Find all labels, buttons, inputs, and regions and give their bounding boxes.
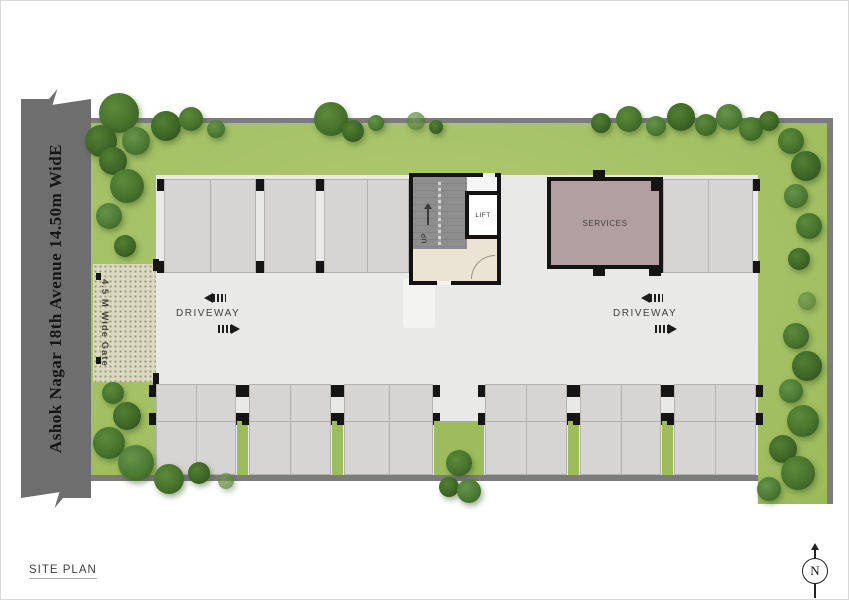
tree xyxy=(154,464,184,494)
tree xyxy=(667,103,695,131)
arrow-bar-icon xyxy=(213,294,226,302)
tree xyxy=(695,114,717,136)
column xyxy=(667,413,674,425)
arrow-right-icon xyxy=(668,324,677,334)
tree xyxy=(110,169,144,203)
tree xyxy=(114,235,136,257)
tree xyxy=(446,450,472,476)
compass-north-label: N xyxy=(802,558,828,584)
lift-room: LIFT xyxy=(465,191,501,239)
column xyxy=(573,385,580,397)
tree xyxy=(716,104,742,130)
up-label: UP xyxy=(422,222,429,244)
column xyxy=(337,385,344,397)
tree xyxy=(407,112,425,130)
north-compass: N xyxy=(801,543,829,599)
up-arrow-tip xyxy=(424,203,432,209)
column xyxy=(242,413,249,425)
driveway-label-right: DRIVEWAY xyxy=(613,293,699,334)
tree xyxy=(218,473,234,489)
planting-strip xyxy=(568,421,579,475)
arrow-left-icon xyxy=(641,293,650,303)
boundary-wall-right xyxy=(827,118,833,504)
tree xyxy=(781,456,815,490)
services-column xyxy=(593,170,605,177)
parking-stall-group xyxy=(264,179,316,273)
tree xyxy=(151,111,181,141)
driveway-label-left: DRIVEWAY xyxy=(176,293,262,334)
arrow-bar-icon xyxy=(650,294,663,302)
gate-label: 4.5 M Wide Gate xyxy=(99,279,110,367)
tree xyxy=(796,213,822,239)
arrow-right-icon xyxy=(231,324,240,334)
tree xyxy=(616,106,642,132)
tree xyxy=(788,248,810,270)
services-column xyxy=(649,269,661,276)
stall-divider xyxy=(210,179,211,273)
tree xyxy=(457,479,481,503)
road: Ashok Nagar 18th Avenue 14.50m WidE xyxy=(21,89,91,508)
stair-rail xyxy=(438,181,441,245)
tree xyxy=(779,379,803,403)
tree xyxy=(429,120,443,134)
planting-strip xyxy=(662,421,673,475)
column xyxy=(242,385,249,397)
driveway-text: DRIVEWAY xyxy=(176,308,262,319)
door-opening xyxy=(437,281,451,285)
column xyxy=(257,179,264,191)
entry-gate: 4.5 M Wide Gate xyxy=(93,264,156,382)
driveway-text: DRIVEWAY xyxy=(613,308,699,319)
column xyxy=(756,413,763,425)
stall-divider xyxy=(715,384,716,475)
wall-opening xyxy=(483,173,495,177)
tree xyxy=(787,405,819,437)
column xyxy=(317,179,324,191)
column xyxy=(478,385,485,397)
planting-strip xyxy=(237,421,248,475)
tree xyxy=(798,292,816,310)
page-title: SITE PLAN xyxy=(29,564,97,579)
tree xyxy=(113,402,141,430)
stall-divider xyxy=(389,384,390,475)
tree xyxy=(439,477,459,497)
tree xyxy=(179,107,203,131)
site-plan-canvas: Ashok Nagar 18th Avenue 14.50m WidE 4.5 … xyxy=(0,0,849,600)
tree xyxy=(778,128,804,154)
tree xyxy=(368,115,384,131)
compass-needle-tip-icon xyxy=(811,543,819,550)
column xyxy=(157,179,164,191)
watermark xyxy=(403,278,435,328)
services-column xyxy=(651,181,659,191)
column xyxy=(756,385,763,397)
tree xyxy=(757,477,781,501)
column xyxy=(149,413,156,425)
road-label: Ashok Nagar 18th Avenue 14.50m WidE xyxy=(46,144,66,453)
services-room: SERVICES xyxy=(547,177,663,269)
tree xyxy=(646,116,666,136)
tree xyxy=(96,203,122,229)
gate-marker xyxy=(96,273,101,280)
tree xyxy=(783,323,809,349)
arrow-bar-icon xyxy=(655,325,668,333)
tree xyxy=(118,445,154,481)
lift-label: LIFT xyxy=(475,212,490,219)
column xyxy=(573,413,580,425)
tree xyxy=(207,120,225,138)
column xyxy=(257,261,264,273)
tree xyxy=(759,111,779,131)
column xyxy=(478,413,485,425)
tree xyxy=(591,113,611,133)
stall-divider xyxy=(708,179,709,273)
services-label: SERVICES xyxy=(582,219,627,228)
tree xyxy=(342,120,364,142)
column xyxy=(157,261,164,273)
stall-divider xyxy=(621,384,622,475)
column xyxy=(317,261,324,273)
tree xyxy=(122,127,150,155)
tree xyxy=(102,382,124,404)
arrow-bar-icon xyxy=(218,325,231,333)
column xyxy=(337,413,344,425)
stall-divider xyxy=(367,179,368,273)
column xyxy=(667,385,674,397)
planting-strip xyxy=(332,421,343,475)
services-column xyxy=(593,269,605,276)
arrow-left-icon xyxy=(204,293,213,303)
tree xyxy=(784,184,808,208)
gate-marker xyxy=(96,357,101,364)
tree xyxy=(188,462,210,484)
column xyxy=(753,261,760,273)
stall-divider xyxy=(290,384,291,475)
stall-divider xyxy=(526,384,527,475)
tree xyxy=(792,351,822,381)
column xyxy=(753,179,760,191)
column xyxy=(149,385,156,397)
column xyxy=(433,385,440,397)
tree xyxy=(791,151,821,181)
